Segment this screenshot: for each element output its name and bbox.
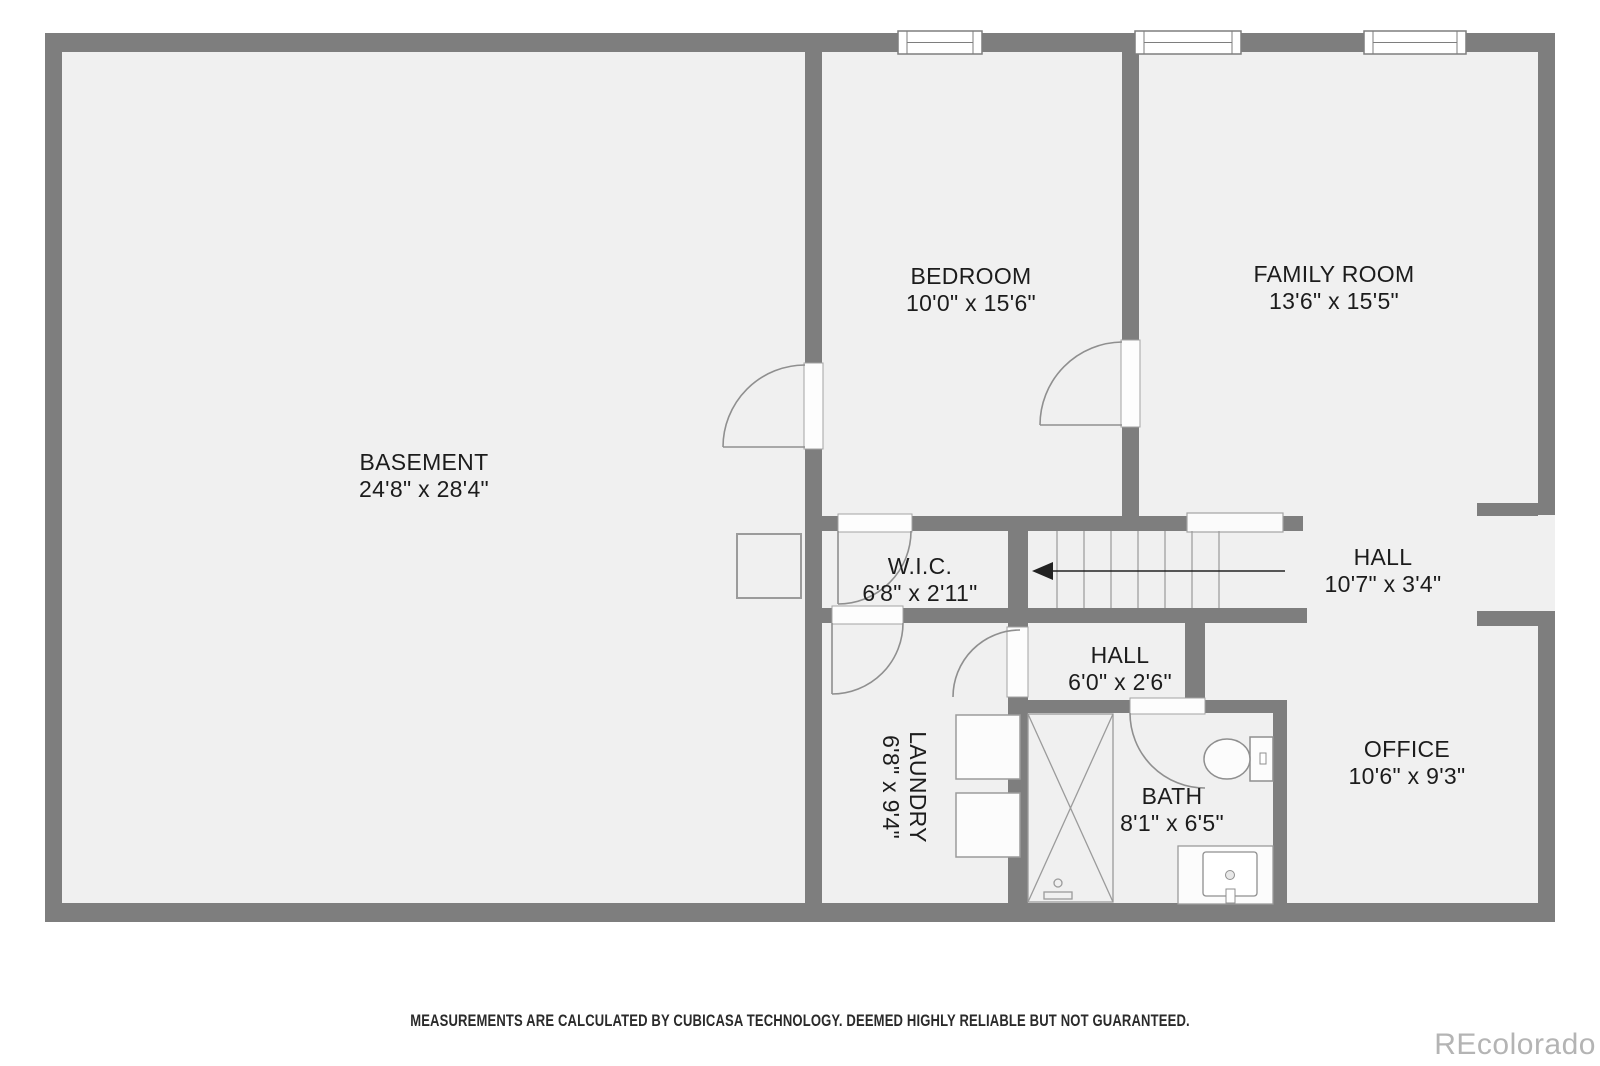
room-dims: 6'0" x 2'6"	[1068, 669, 1172, 696]
room-label-basement: BASEMENT 24'8" x 28'4"	[359, 449, 489, 503]
room-dims: 24'8" x 28'4"	[359, 476, 489, 503]
wall	[1477, 503, 1538, 516]
wall	[45, 33, 62, 922]
wall	[1008, 531, 1028, 608]
room-name: FAMILY ROOM	[1254, 261, 1415, 288]
wall	[1538, 611, 1555, 922]
room-label-family-room: FAMILY ROOM 13'6" x 15'5"	[1254, 261, 1415, 315]
room-name: BATH	[1120, 783, 1224, 810]
wall	[805, 516, 838, 531]
wall	[805, 608, 832, 623]
wall	[1283, 516, 1303, 531]
wall	[45, 33, 1555, 52]
wall	[903, 608, 1307, 623]
wall	[1028, 700, 1130, 713]
floor-plan: BASEMENT 24'8" x 28'4" BEDROOM 10'0" x 1…	[0, 0, 1600, 1066]
room-name: HALL	[1068, 642, 1172, 669]
room-dims: 10'0" x 15'6"	[906, 290, 1036, 317]
floor-right-wall-gap	[1538, 515, 1555, 611]
room-dims: 8'1" x 6'5"	[1120, 810, 1224, 837]
wall	[912, 516, 1187, 531]
room-name: BEDROOM	[906, 263, 1036, 290]
room-label-wic: W.I.C. 6'8" x 2'11"	[862, 553, 977, 607]
room-dims: 13'6" x 15'5"	[1254, 288, 1415, 315]
room-dims: 6'8" x 9'4"	[877, 731, 904, 843]
wall	[805, 52, 822, 365]
wall	[1273, 700, 1287, 903]
room-dims: 10'6" x 9'3"	[1349, 763, 1466, 790]
room-name: HALL	[1325, 544, 1442, 571]
room-name: W.I.C.	[862, 553, 977, 580]
room-label-bedroom: BEDROOM 10'0" x 15'6"	[906, 263, 1036, 317]
recolorado-watermark: REcolorado	[1434, 1028, 1596, 1062]
room-label-hall-upper: HALL 10'7" x 3'4"	[1325, 544, 1442, 598]
room-label-laundry: LAUNDRY 6'8" x 9'4"	[877, 731, 931, 843]
room-label-bath: BATH 8'1" x 6'5"	[1120, 783, 1224, 837]
room-dims: 10'7" x 3'4"	[1325, 571, 1442, 598]
wall	[1122, 425, 1139, 517]
disclaimer-text: MEASUREMENTS ARE CALCULATED BY CUBICASA …	[410, 1012, 1190, 1031]
wall	[1538, 33, 1555, 515]
wall	[1477, 611, 1538, 626]
wall	[1185, 623, 1205, 703]
wall	[45, 903, 1555, 922]
wall	[1122, 52, 1139, 342]
room-label-hall-lower: HALL 6'0" x 2'6"	[1068, 642, 1172, 696]
room-name: OFFICE	[1349, 736, 1466, 763]
room-dims: 6'8" x 2'11"	[862, 580, 977, 607]
room-name: BASEMENT	[359, 449, 489, 476]
room-label-office: OFFICE 10'6" x 9'3"	[1349, 736, 1466, 790]
floor	[62, 52, 1538, 903]
wall	[1008, 623, 1028, 903]
room-name: LAUNDRY	[904, 731, 931, 843]
